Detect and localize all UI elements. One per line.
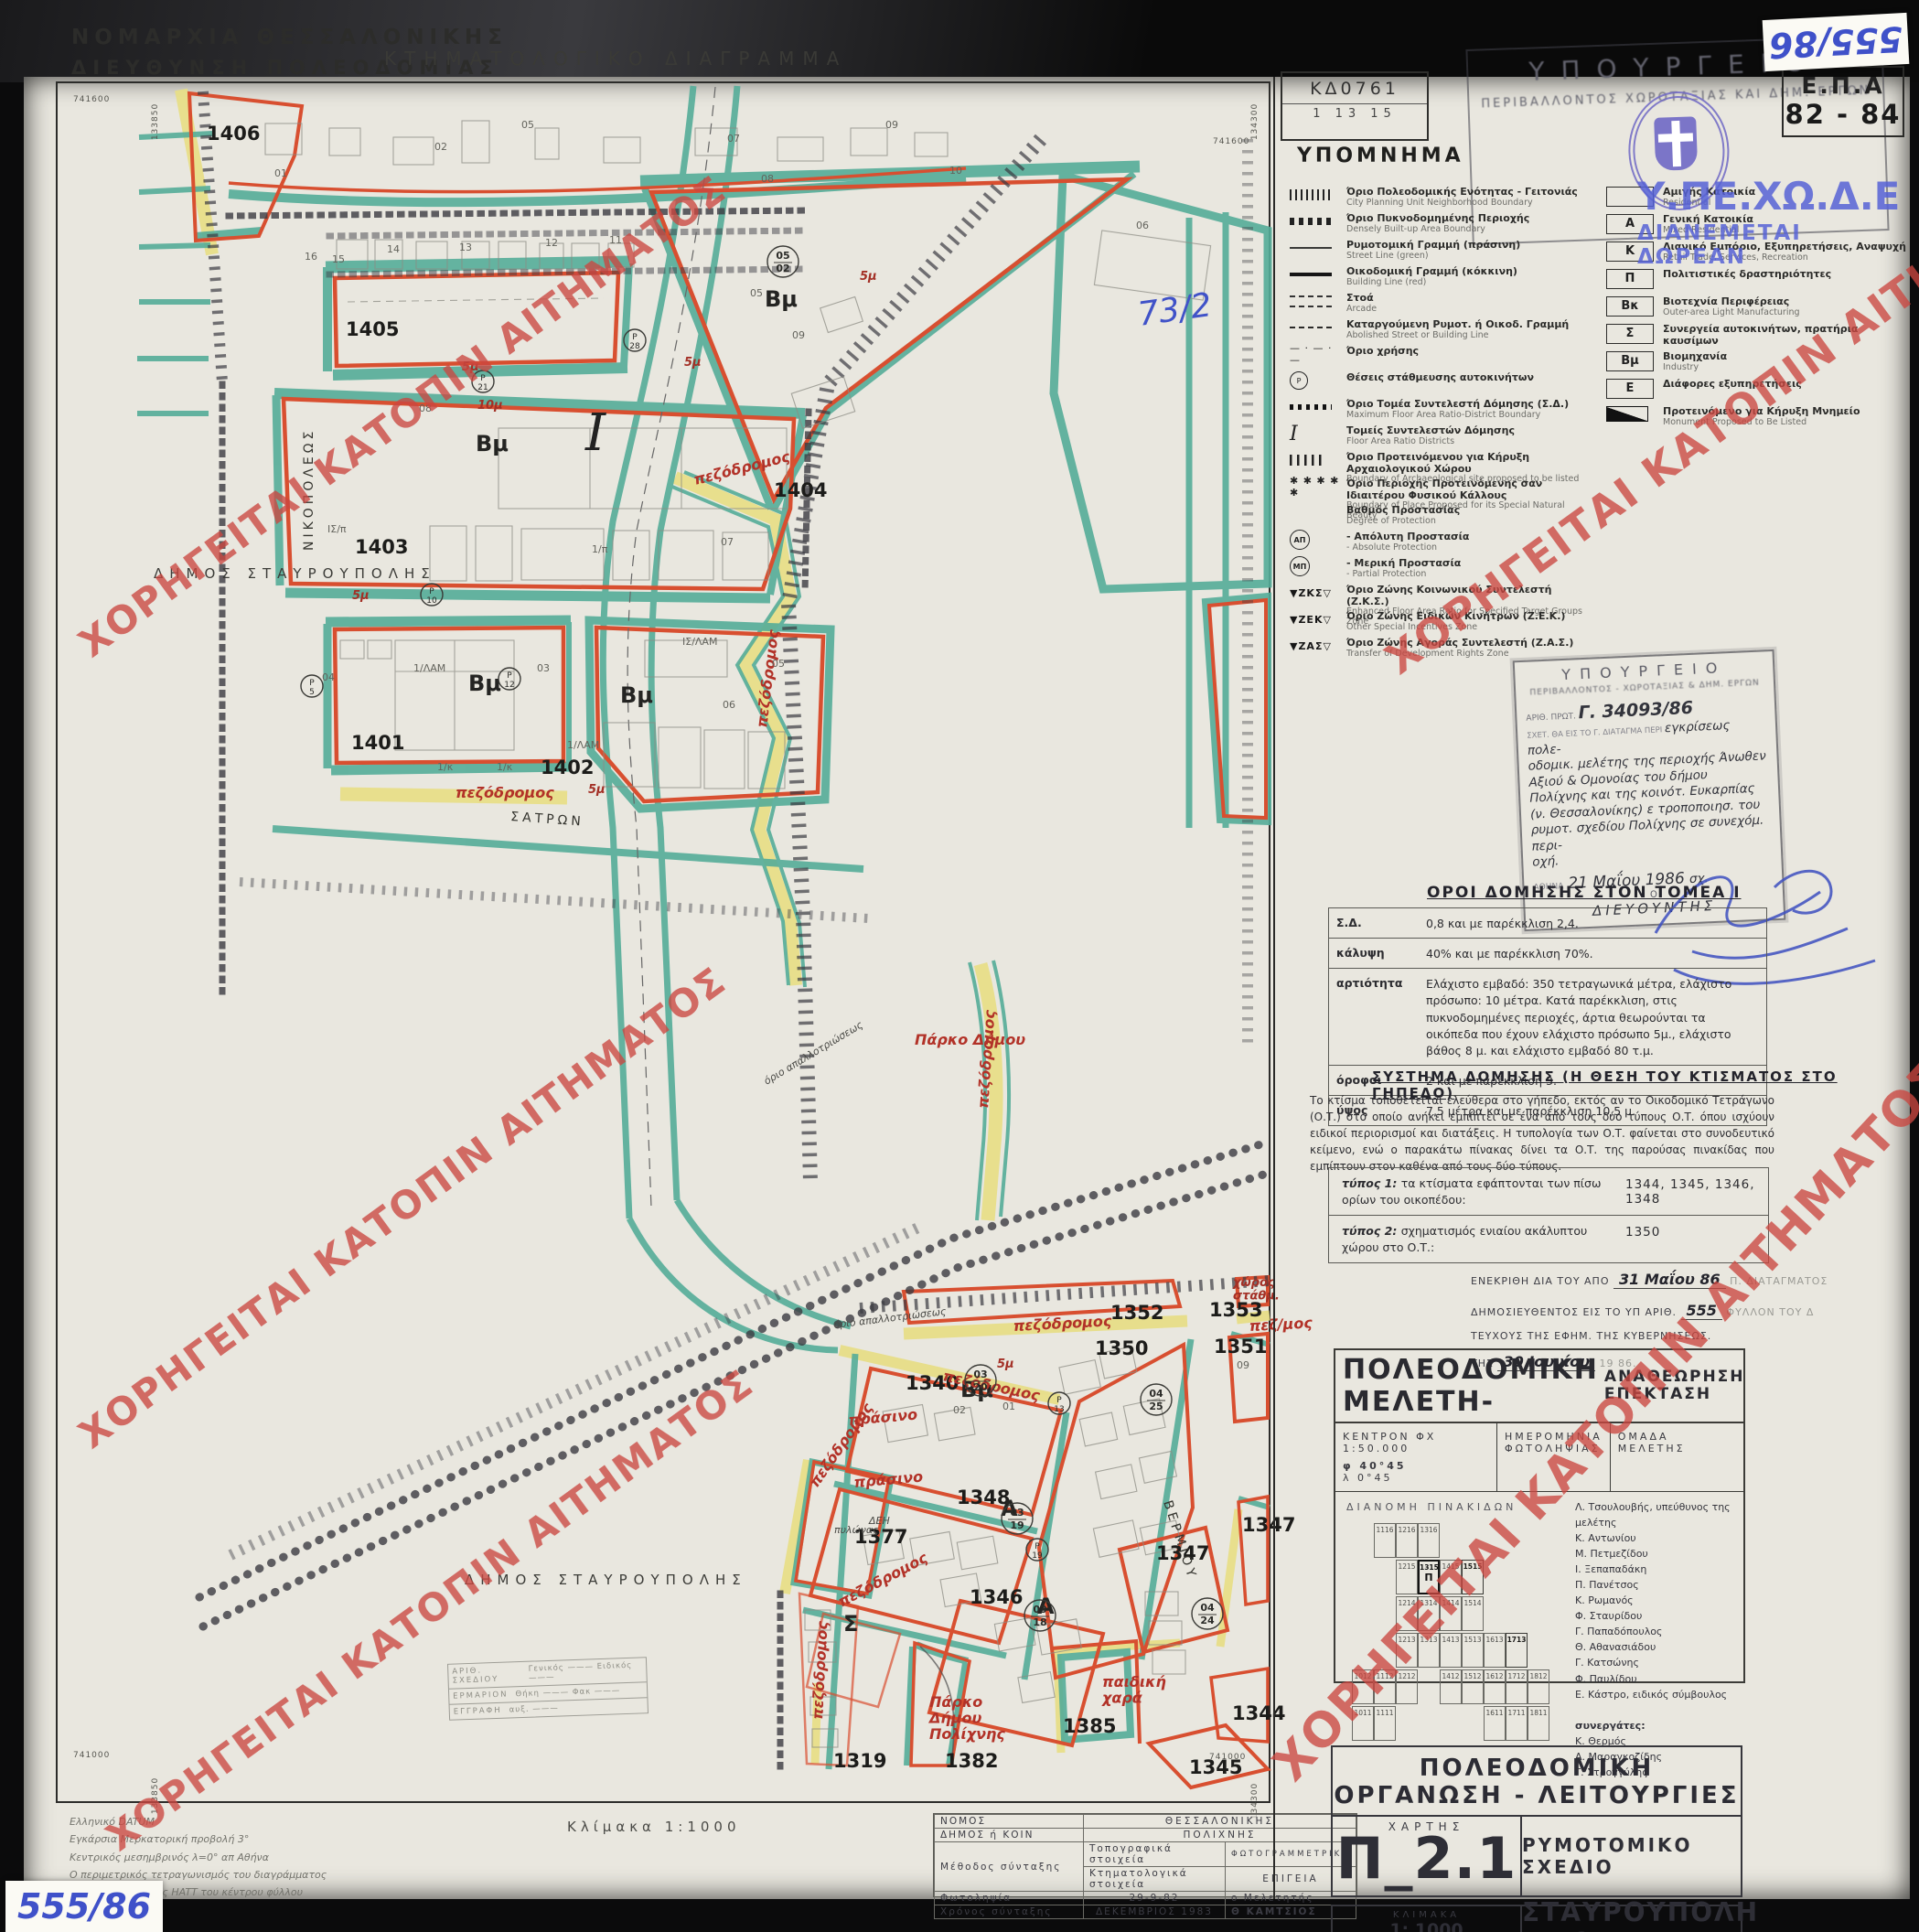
map-label: 1401 xyxy=(351,732,404,754)
terms-title: ΟΡΟΙ ΔΟΜΗΣΗΣ ΣΤΟΝ ΤΟΜΕΑ Ι xyxy=(1427,884,1742,902)
map-label: Βμ xyxy=(765,286,798,312)
registry-sticker-top: 555/86 xyxy=(1763,13,1910,71)
map-label: 07 xyxy=(727,133,740,145)
tb-label: Φωτοληψία xyxy=(935,1892,1084,1905)
map-label: Βμ xyxy=(620,682,653,708)
kentron-cell: ΚΕΝΤΡΟΝ ΦΧ 1:50.000 φ 40°45 λ 0°45 xyxy=(1335,1423,1497,1491)
grid-cell: 1513 xyxy=(1462,1633,1484,1668)
sheet-index: 1 13 15 xyxy=(1282,103,1427,123)
epa-label: Ε.Π.Α xyxy=(1784,72,1903,99)
svg-text:24: 24 xyxy=(1200,1615,1215,1626)
map-label: 04 xyxy=(322,671,335,683)
parking-circle: Ρ5 xyxy=(301,675,323,697)
map-label: 09 xyxy=(1237,1359,1249,1371)
map-label: 06 xyxy=(1136,220,1149,231)
land-use-item: ΣΣυνεργεία αυτοκινήτων, πρατήρια καυσίμω… xyxy=(1606,324,1908,351)
thin-symbol-icon xyxy=(1290,240,1346,256)
type-row: τύπος 2: σχηματισμός ενιαίου ακάλυπτου χ… xyxy=(1329,1216,1768,1262)
map-label: 08 xyxy=(419,402,432,414)
grid-cell: 1415 xyxy=(1440,1560,1462,1594)
ratio-circle: 0502 xyxy=(767,246,799,277)
study-subtitle1: ΑΝΑΘΕΩΡΗΣΗ xyxy=(1604,1368,1745,1386)
map-label: 01 xyxy=(1002,1401,1015,1412)
legend-item-text: Βαθμός ΠροστασίαςDegree of Protection xyxy=(1346,505,1460,526)
svg-text:02: 02 xyxy=(776,263,789,274)
pedestrian-ways xyxy=(181,90,1270,1764)
protocol-label: ΑΡΙΘ. ΠΡΩΤ. xyxy=(1526,712,1576,723)
legend-item: ΜΠ- Μερική Προστασία- Partial Protection xyxy=(1290,558,1596,585)
archive-row-label: ΕΡΜΑΡΙΟΝ xyxy=(453,1690,509,1701)
legend-item: ΣτοάArcade xyxy=(1290,293,1596,319)
map-label: Σ xyxy=(843,1611,858,1637)
grid-cell: 1215 xyxy=(1396,1560,1418,1594)
legend-item: ΑΠ- Απόλυτη Προστασία- Absolute Protecti… xyxy=(1290,531,1596,558)
map-label: 1346 xyxy=(970,1586,1023,1608)
protocol-number: Γ. 34093/86 xyxy=(1578,698,1693,723)
type-row: τύπος 1: τα κτίσματα εφάπτονται των πίσω… xyxy=(1329,1168,1768,1216)
grid-cell: 1112 xyxy=(1374,1669,1396,1704)
map-label: 5μ xyxy=(588,783,606,797)
map-label: 01 xyxy=(274,167,287,179)
grid-cell: 1412 xyxy=(1440,1669,1462,1704)
map-label: 73/2 xyxy=(1136,286,1215,334)
legend-item-text: Όριο Ζώνης Αγοράς Συντελεστή (Ζ.Α.Σ.)Tra… xyxy=(1346,638,1573,659)
study-box: ΠΟΛΕΟΔΟΜΙΚΗ ΜΕΛΕΤΗ- ΑΝΑΘΕΩΡΗΣΗ ΕΠΕΚΤΑΣΗ … xyxy=(1334,1348,1745,1683)
tb-label: Χρόνος σύνταξης xyxy=(935,1905,1084,1919)
gazette-line: ΕΝΕΚΡΙΘΗ ΔΙΑ ΤΟΥ ΑΠΟ 31 Μαΐου 86 Π. ΔΙΑΤ… xyxy=(1471,1264,1855,1295)
grid-cell: 1314 xyxy=(1418,1596,1440,1631)
map-label: 5μ xyxy=(352,589,370,603)
types-table: τύπος 1: τα κτίσματα εφάπτονται των πίσω… xyxy=(1328,1167,1769,1263)
badge-symbol-icon: ΑΠ xyxy=(1290,531,1346,548)
map-label: 10 xyxy=(949,165,962,177)
grid-cell: 1515 xyxy=(1462,1560,1484,1594)
map-type: ΡΥΜΟΤΟΜΙΚΟ ΣΧΕΔΙΟ xyxy=(1522,1817,1741,1895)
photo-date-cell: ΗΜΕΡΟΜΗΝΙΑΦΩΤΟΛΗΨΙΑΣ xyxy=(1497,1423,1611,1491)
none-symbol-icon xyxy=(1290,505,1346,521)
svg-text:Ρ: Ρ xyxy=(632,333,638,342)
svg-text:10: 10 xyxy=(426,596,437,606)
thick-symbol-icon xyxy=(1290,266,1346,283)
glyph-symbol-icon: ✱ ✱ ✱ ✱ ✱ xyxy=(1290,478,1346,495)
use-code-box: Βκ xyxy=(1606,296,1654,317)
svg-text:12: 12 xyxy=(504,681,514,690)
gazette-line: ΤΕΥΧΟΥΣ ΤΗΣ ΕΦΗΜ. ΤΗΣ ΚΥΒΕΡΝΗΣΕΩΣ. xyxy=(1471,1326,1855,1347)
gazette-line: ΔΗΜΟΣΙΕΥΘΕΝΤΟΣ ΕΙΣ ΤΟ ΥΠ ΑΡΙΘ. 555 ΦΥΛΛΟ… xyxy=(1471,1295,1855,1326)
svg-text:Ρ: Ρ xyxy=(507,671,512,681)
svg-text:Ρ: Ρ xyxy=(309,679,315,688)
street-lines-green xyxy=(137,86,1270,1769)
map-label: πεζόδρομος xyxy=(456,784,554,801)
parking-circle: Ρ21 xyxy=(472,370,494,392)
svg-text:05: 05 xyxy=(776,250,789,262)
grid-cell: 1514 xyxy=(1462,1596,1484,1631)
grid-cell: 1214 xyxy=(1396,1596,1418,1631)
registry-number: 555/86 xyxy=(1768,18,1903,66)
map-label: πεζόδρομος xyxy=(809,1620,831,1720)
legend-item: Όριο Πυκνοδομημένης ΠεριοχήςDensely Buil… xyxy=(1290,213,1596,240)
parking-circle: Ρ12 xyxy=(499,668,520,690)
legend-item-text: Όριο Πυκνοδομημένης ΠεριοχήςDensely Buil… xyxy=(1346,213,1529,234)
land-use-item: ΒκΒιοτεχνία ΠεριφέρειαςOuter-area Light … xyxy=(1606,296,1908,324)
corner-coordinate: 133850 xyxy=(151,1777,160,1814)
map-label: ΔΗΜΟΣ ΣΤΑΥΡΟΥΠΟΛΗΣ xyxy=(465,1572,747,1588)
map-label: ΙΣ/π xyxy=(327,523,347,535)
legend-symbols: Όριο Πολεοδομικής Ενότητας - ΓειτονιάςCi… xyxy=(1290,187,1596,664)
corner-coordinate: 133850 xyxy=(151,103,160,140)
map-label: Βμ xyxy=(468,671,501,696)
legend-item-text: - Απόλυτη Προστασία- Absolute Protection xyxy=(1346,531,1469,553)
agency-name: ΝΟΜΑΡΧΙΑ ΘΕΣΣΑΛΟΝΙΚΗΣ xyxy=(71,26,508,49)
legend-item: ΡΘέσεις στάθμευσης αυτοκινήτων xyxy=(1290,372,1596,399)
map-label: 11 xyxy=(609,234,622,246)
org-box: ΠΟΛΕΟΔΟΜΙΚΗ ΟΡΓΑΝΩΣΗ - ΛΕΙΤΟΥΡΓΙΕΣ ΧΑΡΤΗ… xyxy=(1331,1745,1742,1932)
land-use-item: ΒμΒιομηχανίαIndustry xyxy=(1606,351,1908,379)
map-label: 1347 xyxy=(1242,1514,1295,1536)
legend-item: — · — · —Όριο χρήσης xyxy=(1290,346,1596,372)
legend-item-text: Οικοδομική Γραμμή (κόκκινη)Building Line… xyxy=(1346,266,1517,287)
legend-item: ▼ΖΕΚ▽Όριο Ζώνης Ειδικών Κινήτρων (Ζ.Ε.Κ.… xyxy=(1290,611,1596,638)
map-label: 1/ΛΑΜ xyxy=(567,739,599,751)
map-label: 12 xyxy=(545,237,558,249)
map-label: παιδικήχαρά xyxy=(1101,1673,1166,1707)
archive-row-value: Θήκη ——— Φακ ——— xyxy=(515,1686,620,1699)
zone-symbol-icon: ▼ΖΑΣ▽ xyxy=(1290,638,1346,654)
grid-cell: 1216 xyxy=(1396,1523,1418,1558)
legend-item-text: ΣτοάArcade xyxy=(1346,293,1377,314)
registry-number: 555/86 xyxy=(17,1886,151,1927)
registry-sticker: 555/86 xyxy=(5,1881,163,1932)
use-code-box: Βμ xyxy=(1606,351,1654,371)
tb-label: ΝΟΜΟΣ xyxy=(935,1815,1084,1829)
svg-text:Ρ: Ρ xyxy=(480,374,486,383)
sheet-code: ΚΔ0761 xyxy=(1282,73,1427,99)
scanned-cadastral-sheet: 1406140514031401140214041340135013511352… xyxy=(0,0,1919,1932)
map-label: πυλώνας xyxy=(834,1524,879,1536)
archive-row-value: Γενικός ——— Ειδικός ——— xyxy=(529,1660,643,1682)
map-label: 02 xyxy=(953,1404,966,1416)
map-label: 1405 xyxy=(346,318,399,340)
dashed-symbol-icon xyxy=(1290,319,1346,336)
legend-item-text: Όριο Πολεοδομικής Ενότητας - ΓειτονιάςCi… xyxy=(1346,187,1578,208)
title-block: ΝΟΜΟΣ ΘΕΣΣΑΛΟΝΙΚΗΣ ΔΗΜΟΣ ή ΚΟΙΝ ΠΟΛΙΧΝΗΣ… xyxy=(933,1813,1357,1897)
tb-label: Κτηματολογικά στοιχεία xyxy=(1084,1867,1226,1892)
map-label: 1319 xyxy=(833,1750,886,1772)
sheet-index-grid: 11161216131612151315Π1415151512141314141… xyxy=(1352,1523,1571,1752)
svg-text:Ρ: Ρ xyxy=(1056,1396,1062,1405)
approval-ref: ΣΧΕΤ. ΘΑ ΕΙΣ ΤΟ Γ. ΔΙΑΤΑΓΜΑ ΠΕΡΙ xyxy=(1527,725,1662,740)
zone-symbol-icon: ▼ΖΚΣ▽ xyxy=(1290,585,1346,601)
grid-cell: 1713 xyxy=(1506,1633,1528,1668)
tb-value: ΠΟΛΙΧΝΗΣ xyxy=(1084,1829,1356,1842)
legend-item-text: Ρυμοτομική Γραμμή (πράσινη)Street Line (… xyxy=(1346,240,1520,261)
map-label: ΒΕΡΜΙΟΥ xyxy=(1160,1498,1199,1582)
use-code-box: Ε xyxy=(1606,379,1654,399)
legend-title: ΥΠΟΜΝΗΜΑ xyxy=(1297,145,1464,167)
svg-text:04: 04 xyxy=(1200,1602,1215,1614)
map-label: 13 xyxy=(459,241,472,253)
map-label: ΙΣ/ΛΑΜ xyxy=(682,636,717,648)
legend-item: Όριο Τομέα Συντελεστή Δόμησης (Σ.Δ.)Maxi… xyxy=(1290,399,1596,425)
epa-years: 82 - 84 xyxy=(1784,99,1903,130)
use-code-box: Σ xyxy=(1606,324,1654,344)
grid-cell: 1611 xyxy=(1484,1706,1506,1741)
system-paragraph: Το κτίσμα τοποθετείται ελεύθερα στο γήπε… xyxy=(1310,1092,1774,1175)
map-title: ΚΤΗΜΑΤΟΛΟΓΙΚΟ ΔΙΑΓΡΑΜΜΑ xyxy=(384,48,847,70)
corner-coordinate: 741000 xyxy=(73,1751,110,1760)
free-distribution-overprint: ΔΙΑΝΕΜΕΤΑΙ ΔΩΡΕΑΝ xyxy=(1637,221,1919,269)
epa-box: Ε.Π.Α 82 - 84 xyxy=(1782,66,1904,137)
org-title: ΠΟΛΕΟΔΟΜΙΚΗ ΟΡΓΑΝΩΣΗ - ΛΕΙΤΟΥΡΓΙΕΣ xyxy=(1333,1747,1741,1817)
grid-cell: 1111 xyxy=(1374,1706,1396,1741)
svg-text:Ρ: Ρ xyxy=(1035,1542,1040,1551)
dots-symbol-icon xyxy=(1290,399,1346,415)
vbars-symbol-icon xyxy=(1290,452,1346,468)
map-label: 1385 xyxy=(1063,1715,1116,1737)
corner-coordinate: 741000 xyxy=(1209,1753,1246,1762)
tb-label: Μέθοδος σύνταξης xyxy=(935,1842,1084,1892)
chart-code-cell: ΧΑΡΤΗΣ Π_2.1 xyxy=(1333,1817,1522,1895)
land-use-item: Προτεινόμενο για Κήρυξη ΜνημείοMonument … xyxy=(1606,406,1908,434)
map-label: 1/π xyxy=(592,543,608,555)
legend-item: ▼ΖΚΣ▽Όριο Ζώνης Κοινωνικού Συντελεστή (Ζ… xyxy=(1290,585,1596,611)
scale-note: Κλίμακα 1:1000 xyxy=(567,1819,741,1835)
grid-cell: 1613 xyxy=(1484,1633,1506,1668)
legend-item-text: Όριο Ζώνης Ειδικών Κινήτρων (Ζ.Ε.Κ.)Othe… xyxy=(1346,611,1565,632)
map-label: 05 xyxy=(750,287,763,299)
map-label: 08 xyxy=(761,173,774,185)
svg-text:28: 28 xyxy=(629,342,640,351)
svg-text:03: 03 xyxy=(973,1368,987,1380)
map-label: 5μ xyxy=(860,270,877,284)
grid-title: ΔΙΑΝΟΜΗ ΠΙΝΑΚΙΔΩΝ xyxy=(1346,1501,1517,1513)
grid-cell: 1413 xyxy=(1440,1633,1462,1668)
dotsq-symbol-icon xyxy=(1290,213,1346,230)
map-label: 5μ xyxy=(997,1358,1014,1371)
glyph-symbol-icon: — · — · — xyxy=(1290,346,1346,362)
map-label: ΠάρκοΔήμουΠολίχνης xyxy=(927,1693,1005,1743)
map-label: 1402 xyxy=(541,757,594,778)
map-label: 10μ xyxy=(477,399,503,413)
map-label: 15 xyxy=(332,253,345,265)
map-label: 03 xyxy=(537,662,550,674)
corner-coordinate: 134300 xyxy=(1250,103,1260,140)
legend-item-text: - Μερική Προστασία- Partial Protection xyxy=(1346,558,1461,579)
panel-divider xyxy=(1273,77,1275,1899)
map-label: 16 xyxy=(305,251,317,263)
hatch-symbol-icon xyxy=(1290,187,1346,203)
building-lines-red xyxy=(189,93,1268,1787)
map-label: 02 xyxy=(434,141,447,153)
grid-cell: 1414 xyxy=(1440,1596,1462,1631)
study-title: ΠΟΛΕΟΔΟΜΙΚΗ ΜΕΛΕΤΗ- xyxy=(1343,1354,1599,1418)
map-label: Ι xyxy=(584,403,607,463)
legend-item: Οικοδομική Γραμμή (κόκκινη)Building Line… xyxy=(1290,266,1596,293)
map-label: 1/κ xyxy=(497,761,513,773)
land-use-item: ΠΠολιτιστικές δραστηριότητες xyxy=(1606,269,1908,296)
svg-text:13: 13 xyxy=(1054,1405,1064,1414)
corner-coordinate: 741600 xyxy=(73,95,110,104)
arcade-symbol-icon xyxy=(1290,293,1346,309)
ypexode-overprint: Υ.ΠΕ.ΧΩ.Δ.Ε xyxy=(1637,174,1900,219)
svg-text:19: 19 xyxy=(1010,1519,1024,1531)
legend-item-text: Όριο Τομέα Συντελεστή Δόμησης (Σ.Δ.)Maxi… xyxy=(1346,399,1569,420)
map-label: ΣΑΤΡΩΝ xyxy=(510,810,585,830)
tb-label: ΔΗΜΟΣ ή ΚΟΙΝ xyxy=(935,1829,1084,1842)
terms-row: κάλυψη40% και με παρέκκλιση 70%. xyxy=(1329,939,1766,969)
map-label: Πάρκο Δήμου xyxy=(915,1031,1025,1048)
map-label: 1351 xyxy=(1214,1336,1267,1358)
grid-cell: 1315Π xyxy=(1418,1560,1440,1594)
study-subtitle2: ΕΠΕΚΤΑΣΗ xyxy=(1604,1385,1711,1403)
grid-cell: 1012 xyxy=(1352,1669,1374,1704)
parcel-outlines xyxy=(265,121,1211,1766)
map-label: ΝΙΚΟΠΟΛΕΩΣ xyxy=(302,428,316,551)
tb-label: Τοπογραφικά στοιχεία xyxy=(1084,1842,1226,1867)
legend-item: Ρυμοτομική Γραμμή (πράσινη)Street Line (… xyxy=(1290,240,1596,266)
svg-text:18: 18 xyxy=(1033,1616,1046,1628)
grid-cell: 1712 xyxy=(1506,1669,1528,1704)
terms-row: Σ.Δ.0,8 και με παρέκκλιση 2,4. xyxy=(1329,908,1766,939)
map-label: 1350 xyxy=(1095,1337,1148,1359)
map-label: 1/ΛΑΜ xyxy=(413,662,445,674)
grid-cell: 1812 xyxy=(1528,1669,1549,1704)
archive-row-value: αυξ. ——— xyxy=(509,1704,558,1715)
corner-coordinate: 741600 xyxy=(1213,137,1249,146)
map-label: 05 xyxy=(521,119,534,131)
zone-symbol-icon: ▼ΖΕΚ▽ xyxy=(1290,611,1346,628)
tb-value: 29-9-82 xyxy=(1084,1892,1226,1905)
map-label: 09 xyxy=(792,329,805,341)
tb-value: ΔΕΚΕΜΒΡΙΟΣ 1983 xyxy=(1084,1905,1226,1919)
legend-item: ✱ ✱ ✱ ✱ ✱Όριο Περιοχής Προτεινόμενης σαν… xyxy=(1290,478,1596,505)
map-label: Βμ xyxy=(476,431,509,456)
map-label: 1403 xyxy=(355,536,408,558)
map-label: 1406 xyxy=(207,123,260,145)
monument-symbol-icon xyxy=(1606,406,1648,422)
grid-cell: 1213 xyxy=(1396,1633,1418,1668)
map-label: 06 xyxy=(723,699,735,711)
legend-item: Όριο Πολεοδομικής Ενότητας - ΓειτονιάςCi… xyxy=(1290,187,1596,213)
unit-boundary-hatch xyxy=(203,91,1270,1555)
grid-cell: 1316 xyxy=(1418,1523,1440,1558)
svg-text:03: 03 xyxy=(1010,1507,1024,1519)
map-label: 1/κ xyxy=(437,761,454,773)
land-use-item: ΕΔιάφορες εξυπηρετήσεις xyxy=(1606,379,1908,406)
scale-cell: ΚΛΙΜΑΚΑ 1: 1000 xyxy=(1333,1906,1522,1932)
grid-cell: 1011 xyxy=(1352,1706,1374,1741)
grid-cell: 1512 xyxy=(1462,1669,1484,1704)
legend-item-text: Καταργούμενη Ρυμοτ. ή Οικοδ. ΓραμμήAboli… xyxy=(1346,319,1569,340)
grid-cell: 1116 xyxy=(1374,1523,1396,1558)
grid-cell: 1612 xyxy=(1484,1669,1506,1704)
team-title-cell: ΟΜΑΔΑ ΜΕΛΕΤΗΣ xyxy=(1611,1423,1743,1491)
area-name: ΣΤΑΥΡΟΥΠΟΛΗ – ΠΟΛΙΧΝΗ xyxy=(1522,1906,1759,1932)
archive-row-label: ΑΡΙΘ. ΣΧΕΔΙΟΥ xyxy=(452,1665,521,1686)
archive-row-label: ΕΓΓΡΑΦΗ xyxy=(454,1706,502,1717)
grid-cell: 1313 xyxy=(1418,1633,1440,1668)
badge-symbol-icon: ΜΠ xyxy=(1290,558,1346,574)
svg-text:5: 5 xyxy=(309,688,315,697)
svg-text:19: 19 xyxy=(1032,1551,1043,1561)
map-label: 07 xyxy=(721,536,734,548)
svg-text:04: 04 xyxy=(1149,1388,1163,1400)
grid-cell: 1212 xyxy=(1396,1669,1418,1704)
map-label: 1352 xyxy=(1110,1302,1163,1324)
grid-cell: 1711 xyxy=(1506,1706,1528,1741)
svg-text:21: 21 xyxy=(477,383,488,392)
use-code-box: Π xyxy=(1606,269,1654,289)
study-team: Λ. Τσουλουβής, υπεύθυνος της μελέτηςΚ. Α… xyxy=(1575,1499,1740,1780)
terms-row: αρτιότηταΕλάχιστο εμβαδό: 350 τετραγωνικ… xyxy=(1329,969,1766,1066)
legend-item: IΤομείς Συντελεστών ΔόμησηςFloor Area Ra… xyxy=(1290,425,1596,452)
legend-item-text: Τομείς Συντελεστών ΔόμησηςFloor Area Rat… xyxy=(1346,425,1515,446)
circ-symbol-icon: Ρ xyxy=(1290,372,1346,389)
map-label: 14 xyxy=(387,243,400,255)
legend-item-text: Όριο χρήσης xyxy=(1346,346,1419,358)
svg-text:03: 03 xyxy=(1033,1604,1046,1615)
map-label: 1404 xyxy=(774,479,827,501)
archive-form: ΑΡΙΘ. ΣΧΕΔΙΟΥΓενικός ——— Ειδικός ——— ΕΡΜ… xyxy=(447,1657,649,1721)
legend-item-text: Θέσεις στάθμευσης αυτοκινήτων xyxy=(1346,372,1534,384)
map-label: ΔΗΜΟΣ ΣΤΑΥΡΟΥΠΟΛΗΣ xyxy=(154,565,436,582)
sheet-code-box: ΚΔ0761 1 13 15 xyxy=(1281,71,1429,141)
svg-text:Ρ: Ρ xyxy=(429,587,434,596)
tb-value: ΘΕΣΣΑΛΟΝΙΚΗΣ xyxy=(1084,1815,1356,1829)
map-label: 05 xyxy=(772,658,785,670)
map-label: 1344 xyxy=(1232,1702,1285,1724)
map-label: 5μ xyxy=(684,356,702,370)
map-label: πεζ/μος xyxy=(1249,1314,1313,1335)
map-label: πεζόδρομος xyxy=(835,1549,930,1611)
grid-cell: 1811 xyxy=(1528,1706,1549,1741)
ratio-circle: 0424 xyxy=(1192,1598,1223,1629)
map-label: 1382 xyxy=(945,1750,998,1772)
roman-symbol-icon: I xyxy=(1290,425,1346,442)
map-label: 09 xyxy=(885,119,898,131)
svg-text:25: 25 xyxy=(1149,1401,1163,1412)
svg-text:20: 20 xyxy=(973,1381,988,1393)
